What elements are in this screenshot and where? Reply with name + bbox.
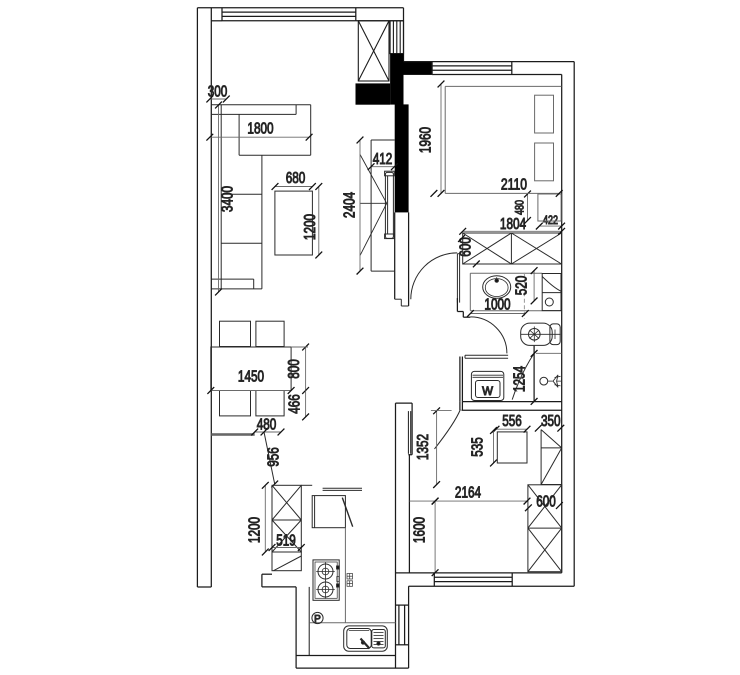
svg-text:1960: 1960 xyxy=(418,127,435,153)
svg-text:600: 600 xyxy=(536,494,556,511)
svg-text:350: 350 xyxy=(541,413,561,430)
svg-text:1200: 1200 xyxy=(302,214,319,240)
svg-text:480: 480 xyxy=(515,200,527,215)
svg-text:519: 519 xyxy=(276,533,296,550)
svg-text:1254: 1254 xyxy=(512,366,529,392)
svg-text:556: 556 xyxy=(502,413,522,430)
svg-text:800: 800 xyxy=(286,359,303,379)
svg-text:1800: 1800 xyxy=(247,121,273,138)
svg-text:520: 520 xyxy=(514,275,531,295)
svg-text:480: 480 xyxy=(257,417,277,434)
svg-text:412: 412 xyxy=(373,151,393,168)
svg-text:956: 956 xyxy=(266,447,283,467)
svg-text:3400: 3400 xyxy=(220,186,237,212)
svg-text:1000: 1000 xyxy=(484,297,510,314)
svg-text:2164: 2164 xyxy=(455,485,481,502)
svg-text:1600: 1600 xyxy=(412,517,429,543)
svg-text:535: 535 xyxy=(470,437,487,457)
svg-text:680: 680 xyxy=(286,170,306,187)
svg-text:1352: 1352 xyxy=(415,434,432,460)
svg-text:1450: 1450 xyxy=(238,369,264,386)
svg-text:1200: 1200 xyxy=(247,517,264,543)
svg-text:466: 466 xyxy=(287,394,304,414)
svg-text:2110: 2110 xyxy=(501,177,527,194)
svg-text:W: W xyxy=(482,386,493,398)
svg-text:1804: 1804 xyxy=(500,216,526,233)
svg-text:2404: 2404 xyxy=(342,192,359,218)
svg-text:P: P xyxy=(314,614,321,625)
